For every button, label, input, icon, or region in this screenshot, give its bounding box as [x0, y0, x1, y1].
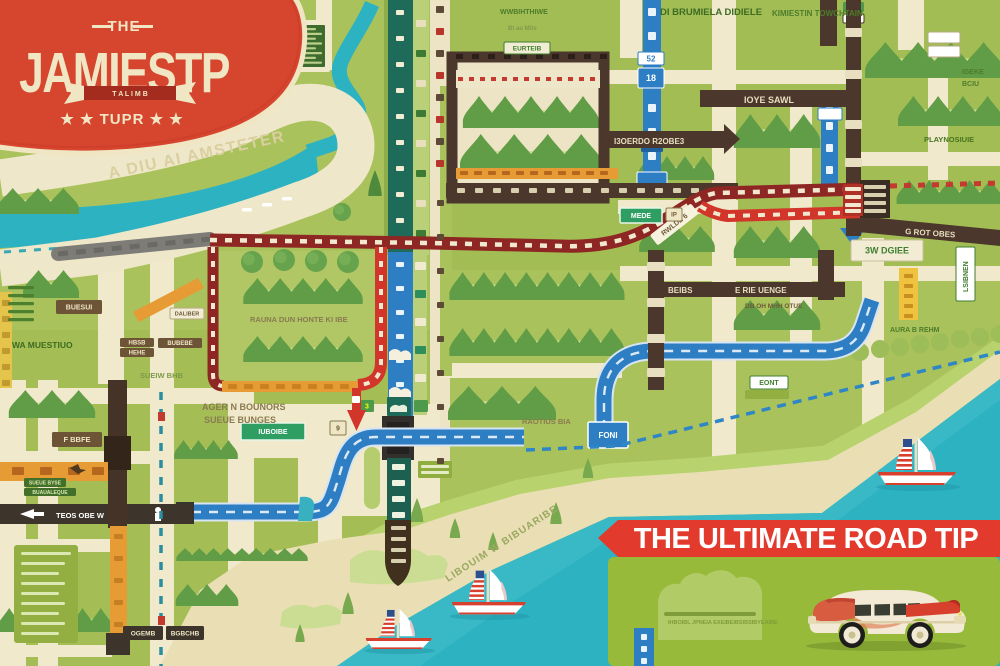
svg-text:IP: IP — [671, 213, 677, 219]
svg-text:WA MUESTIUO: WA MUESTIUO — [12, 340, 73, 350]
svg-text:IOYE SAWL: IOYE SAWL — [744, 95, 795, 105]
svg-text:EONT: EONT — [759, 380, 779, 387]
svg-text:★ ★ TUPR ★ ★: ★ ★ TUPR ★ ★ — [60, 111, 183, 128]
svg-text:DI BRUMIELA DIDIELE: DI BRUMIELA DIDIELE — [660, 7, 762, 18]
svg-text:3W DGIEE: 3W DGIEE — [865, 246, 909, 256]
svg-text:9: 9 — [336, 426, 340, 433]
svg-text:BUESUI: BUESUI — [66, 305, 93, 312]
svg-text:RAUNA DUN HONTE KI IBE: RAUNA DUN HONTE KI IBE — [250, 315, 348, 324]
svg-text:KIMIESTIN TOWCHTAIN: KIMIESTIN TOWCHTAIN — [772, 9, 863, 18]
svg-text:F BBFE: F BBFE — [63, 435, 90, 444]
svg-text:PLAYNOSIUIE: PLAYNOSIUIE — [924, 135, 974, 144]
svg-text:18: 18 — [646, 73, 656, 83]
svg-text:IGEKE: IGEKE — [962, 69, 984, 76]
svg-text:DB OH MHH OTUE: DB OH MHH OTUE — [745, 303, 803, 310]
svg-text:T A L I M B: T A L I M B — [112, 91, 148, 98]
svg-text:HEHE: HEHE — [129, 351, 146, 357]
svg-text:OGEMB: OGEMB — [131, 630, 156, 637]
svg-text:Bt au Mits: Bt au Mits — [508, 26, 537, 32]
svg-text:TEOS OBE W: TEOS OBE W — [56, 511, 105, 520]
svg-text:BCIU: BCIU — [962, 81, 979, 88]
svg-text:BGBCHB: BGBCHB — [171, 630, 200, 637]
svg-text:HBSB: HBSB — [128, 341, 146, 347]
svg-text:LSIBNEN: LSIBNEN — [963, 261, 970, 292]
svg-text:AGER N BOUNORS: AGER N BOUNORS — [202, 402, 286, 412]
svg-text:WWBIHTHIWE: WWBIHTHIWE — [500, 9, 548, 16]
svg-text:I3OERDO R2OBE3: I3OERDO R2OBE3 — [614, 137, 685, 146]
svg-text:FONI: FONI — [598, 431, 617, 440]
svg-text:52: 52 — [647, 54, 656, 63]
svg-text:SUEUE BUNGES: SUEUE BUNGES — [204, 415, 276, 425]
svg-text:SUEUE BYSE: SUEUE BYSE — [29, 480, 62, 486]
svg-text:EURTEIB: EURTEIB — [513, 45, 542, 52]
svg-text:IHBOIBL JPNEIA EXEIBEIBSIBSIBY: IHBOIBL JPNEIA EXEIBEIBSIBSIBYEAIBE — [668, 620, 778, 626]
svg-text:BUAUALEQUE: BUAUALEQUE — [32, 490, 68, 496]
svg-text:MEDE: MEDE — [631, 213, 652, 220]
svg-text:3: 3 — [365, 404, 369, 411]
svg-text:SUEIW BHB: SUEIW BHB — [140, 371, 184, 380]
svg-text:BUBEBE: BUBEBE — [167, 341, 192, 347]
svg-text:DALIBER: DALIBER — [175, 311, 199, 317]
svg-text:AURA B REHM: AURA B REHM — [890, 327, 940, 334]
svg-text:THE ULTIMATE ROAD TIP: THE ULTIMATE ROAD TIP — [634, 523, 979, 555]
svg-text:RAOTIUS BIA: RAOTIUS BIA — [522, 417, 571, 426]
svg-text:E RIE UENGE: E RIE UENGE — [735, 286, 787, 295]
svg-text:BEIBS: BEIBS — [668, 286, 693, 295]
svg-text:IUBOIBE: IUBOIBE — [258, 429, 288, 436]
